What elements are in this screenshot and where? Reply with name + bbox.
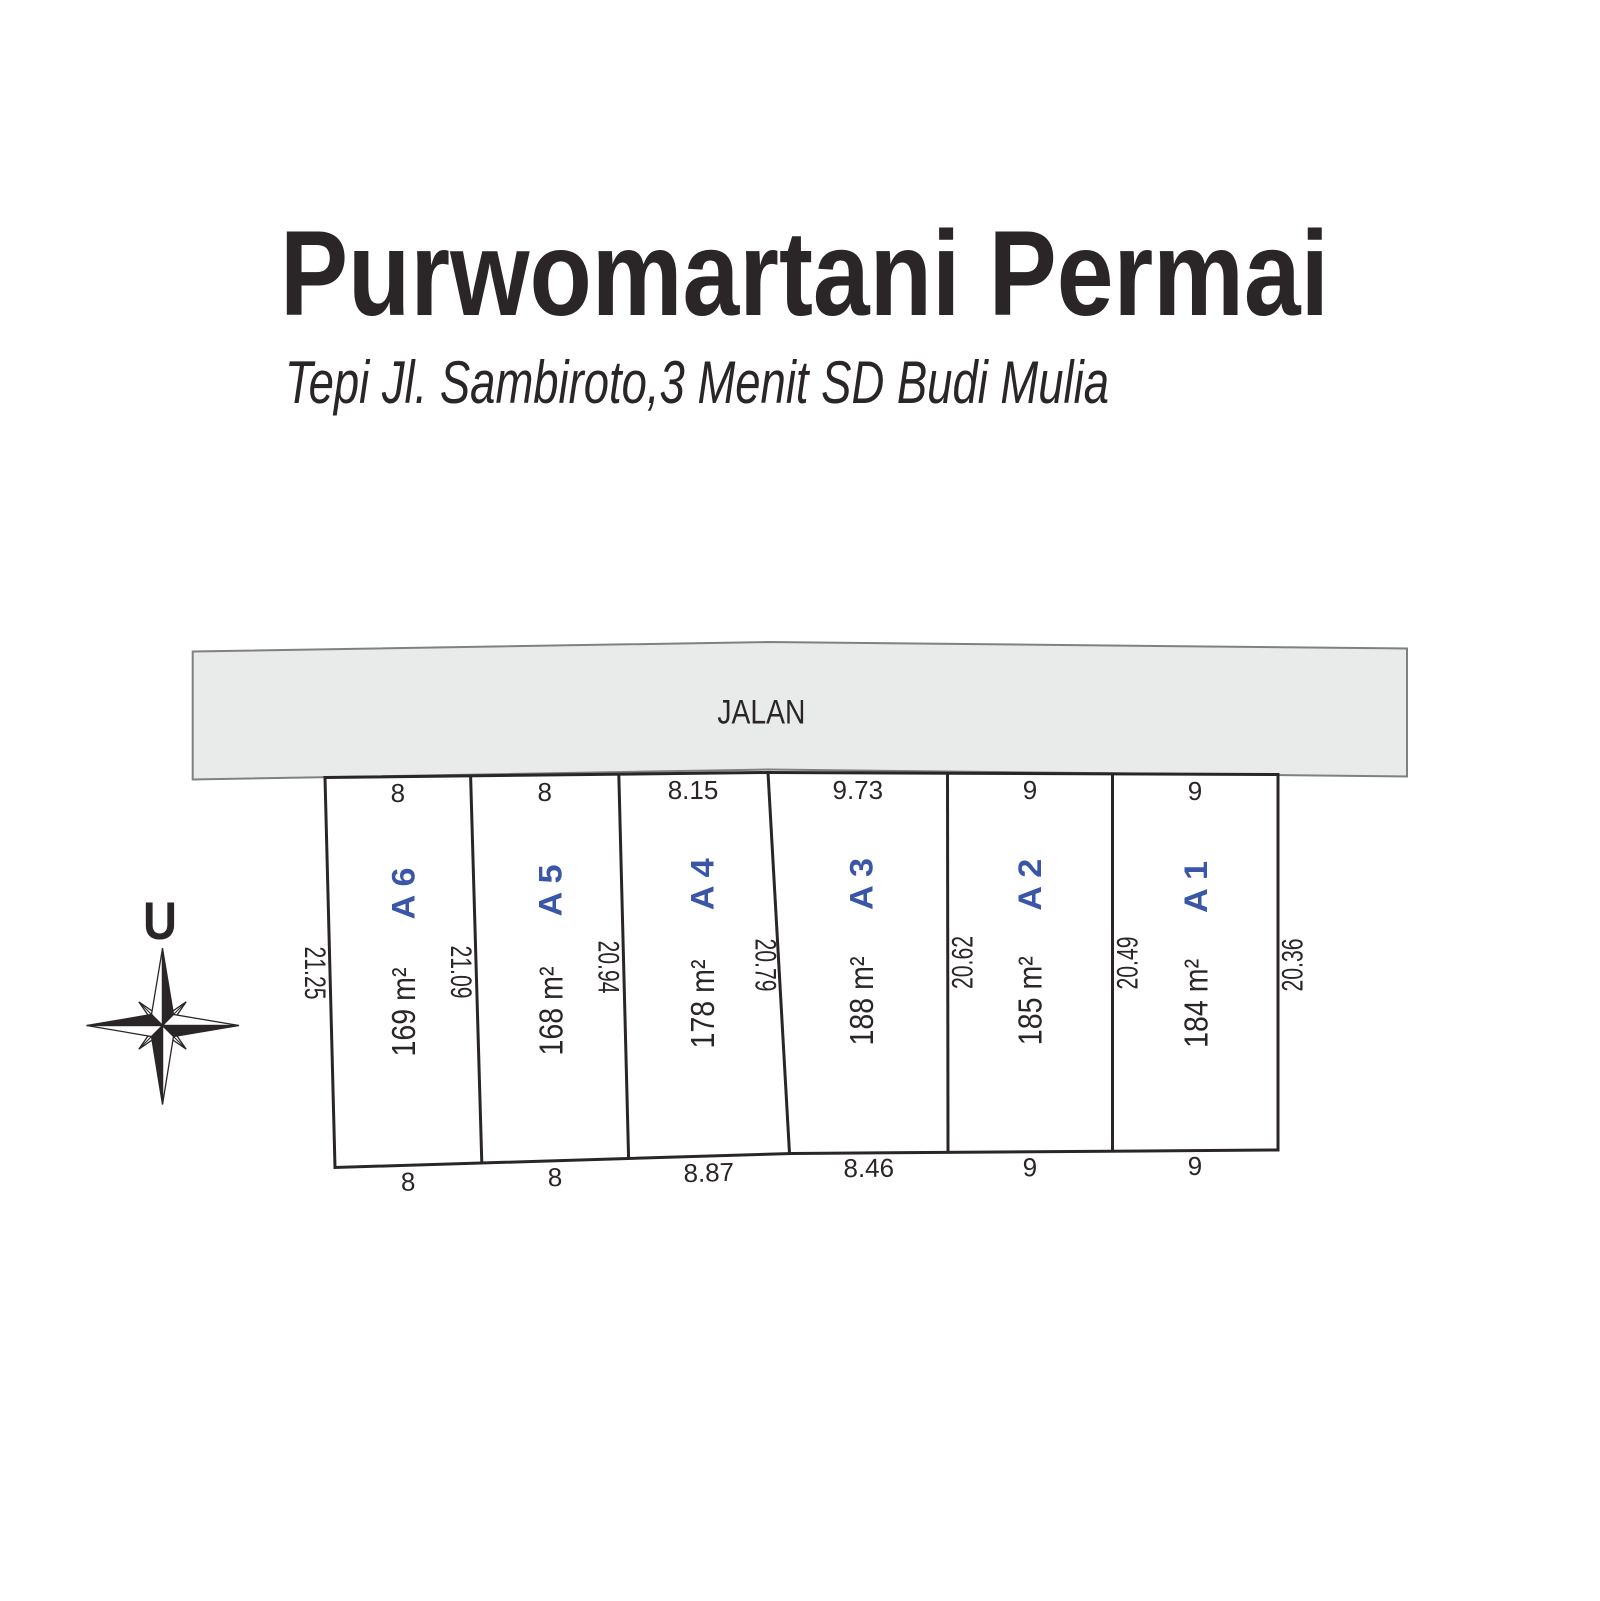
svg-text:184 m²: 184 m²: [1178, 959, 1215, 1048]
svg-text:9: 9: [1188, 776, 1202, 806]
svg-text:Tepi Jl. Sambiroto,3 Menit SD: Tepi Jl. Sambiroto,3 Menit SD Budi Mulia: [285, 348, 1109, 416]
svg-text:A 3: A 3: [844, 858, 880, 910]
svg-text:20.94: 20.94: [592, 941, 625, 994]
svg-text:9: 9: [1023, 775, 1037, 805]
svg-text:A 2: A 2: [1012, 859, 1048, 911]
svg-text:Purwomartani Permai: Purwomartani Permai: [280, 206, 1329, 341]
svg-text:A 4: A 4: [685, 858, 721, 910]
svg-text:8: 8: [391, 778, 405, 808]
svg-text:20.49: 20.49: [1112, 937, 1145, 990]
svg-text:21.09: 21.09: [444, 946, 477, 999]
svg-text:A 6: A 6: [385, 868, 421, 920]
svg-text:20.62: 20.62: [947, 936, 980, 989]
svg-text:U: U: [143, 892, 177, 951]
svg-text:JALAN: JALAN: [717, 694, 805, 732]
svg-text:9: 9: [1188, 1151, 1203, 1181]
svg-text:A 5: A 5: [533, 865, 569, 917]
svg-text:A 1: A 1: [1178, 861, 1214, 913]
svg-text:185 m²: 185 m²: [1012, 956, 1049, 1045]
svg-text:168 m²: 168 m²: [533, 967, 570, 1056]
svg-text:9: 9: [1023, 1152, 1038, 1182]
svg-text:8.46: 8.46: [843, 1153, 894, 1183]
svg-text:8: 8: [537, 777, 551, 807]
svg-text:8: 8: [547, 1162, 562, 1192]
svg-text:9.73: 9.73: [832, 775, 883, 805]
svg-text:8.87: 8.87: [683, 1157, 734, 1188]
svg-text:8: 8: [400, 1166, 415, 1196]
svg-text:8.15: 8.15: [668, 775, 719, 805]
svg-text:188 m²: 188 m²: [843, 957, 880, 1046]
svg-text:178 m²: 178 m²: [684, 960, 721, 1049]
svg-text:20.36: 20.36: [1277, 939, 1310, 992]
svg-text:21.25: 21.25: [298, 947, 331, 1000]
svg-text:169 m²: 169 m²: [385, 968, 422, 1057]
svg-text:20.79: 20.79: [749, 939, 782, 992]
